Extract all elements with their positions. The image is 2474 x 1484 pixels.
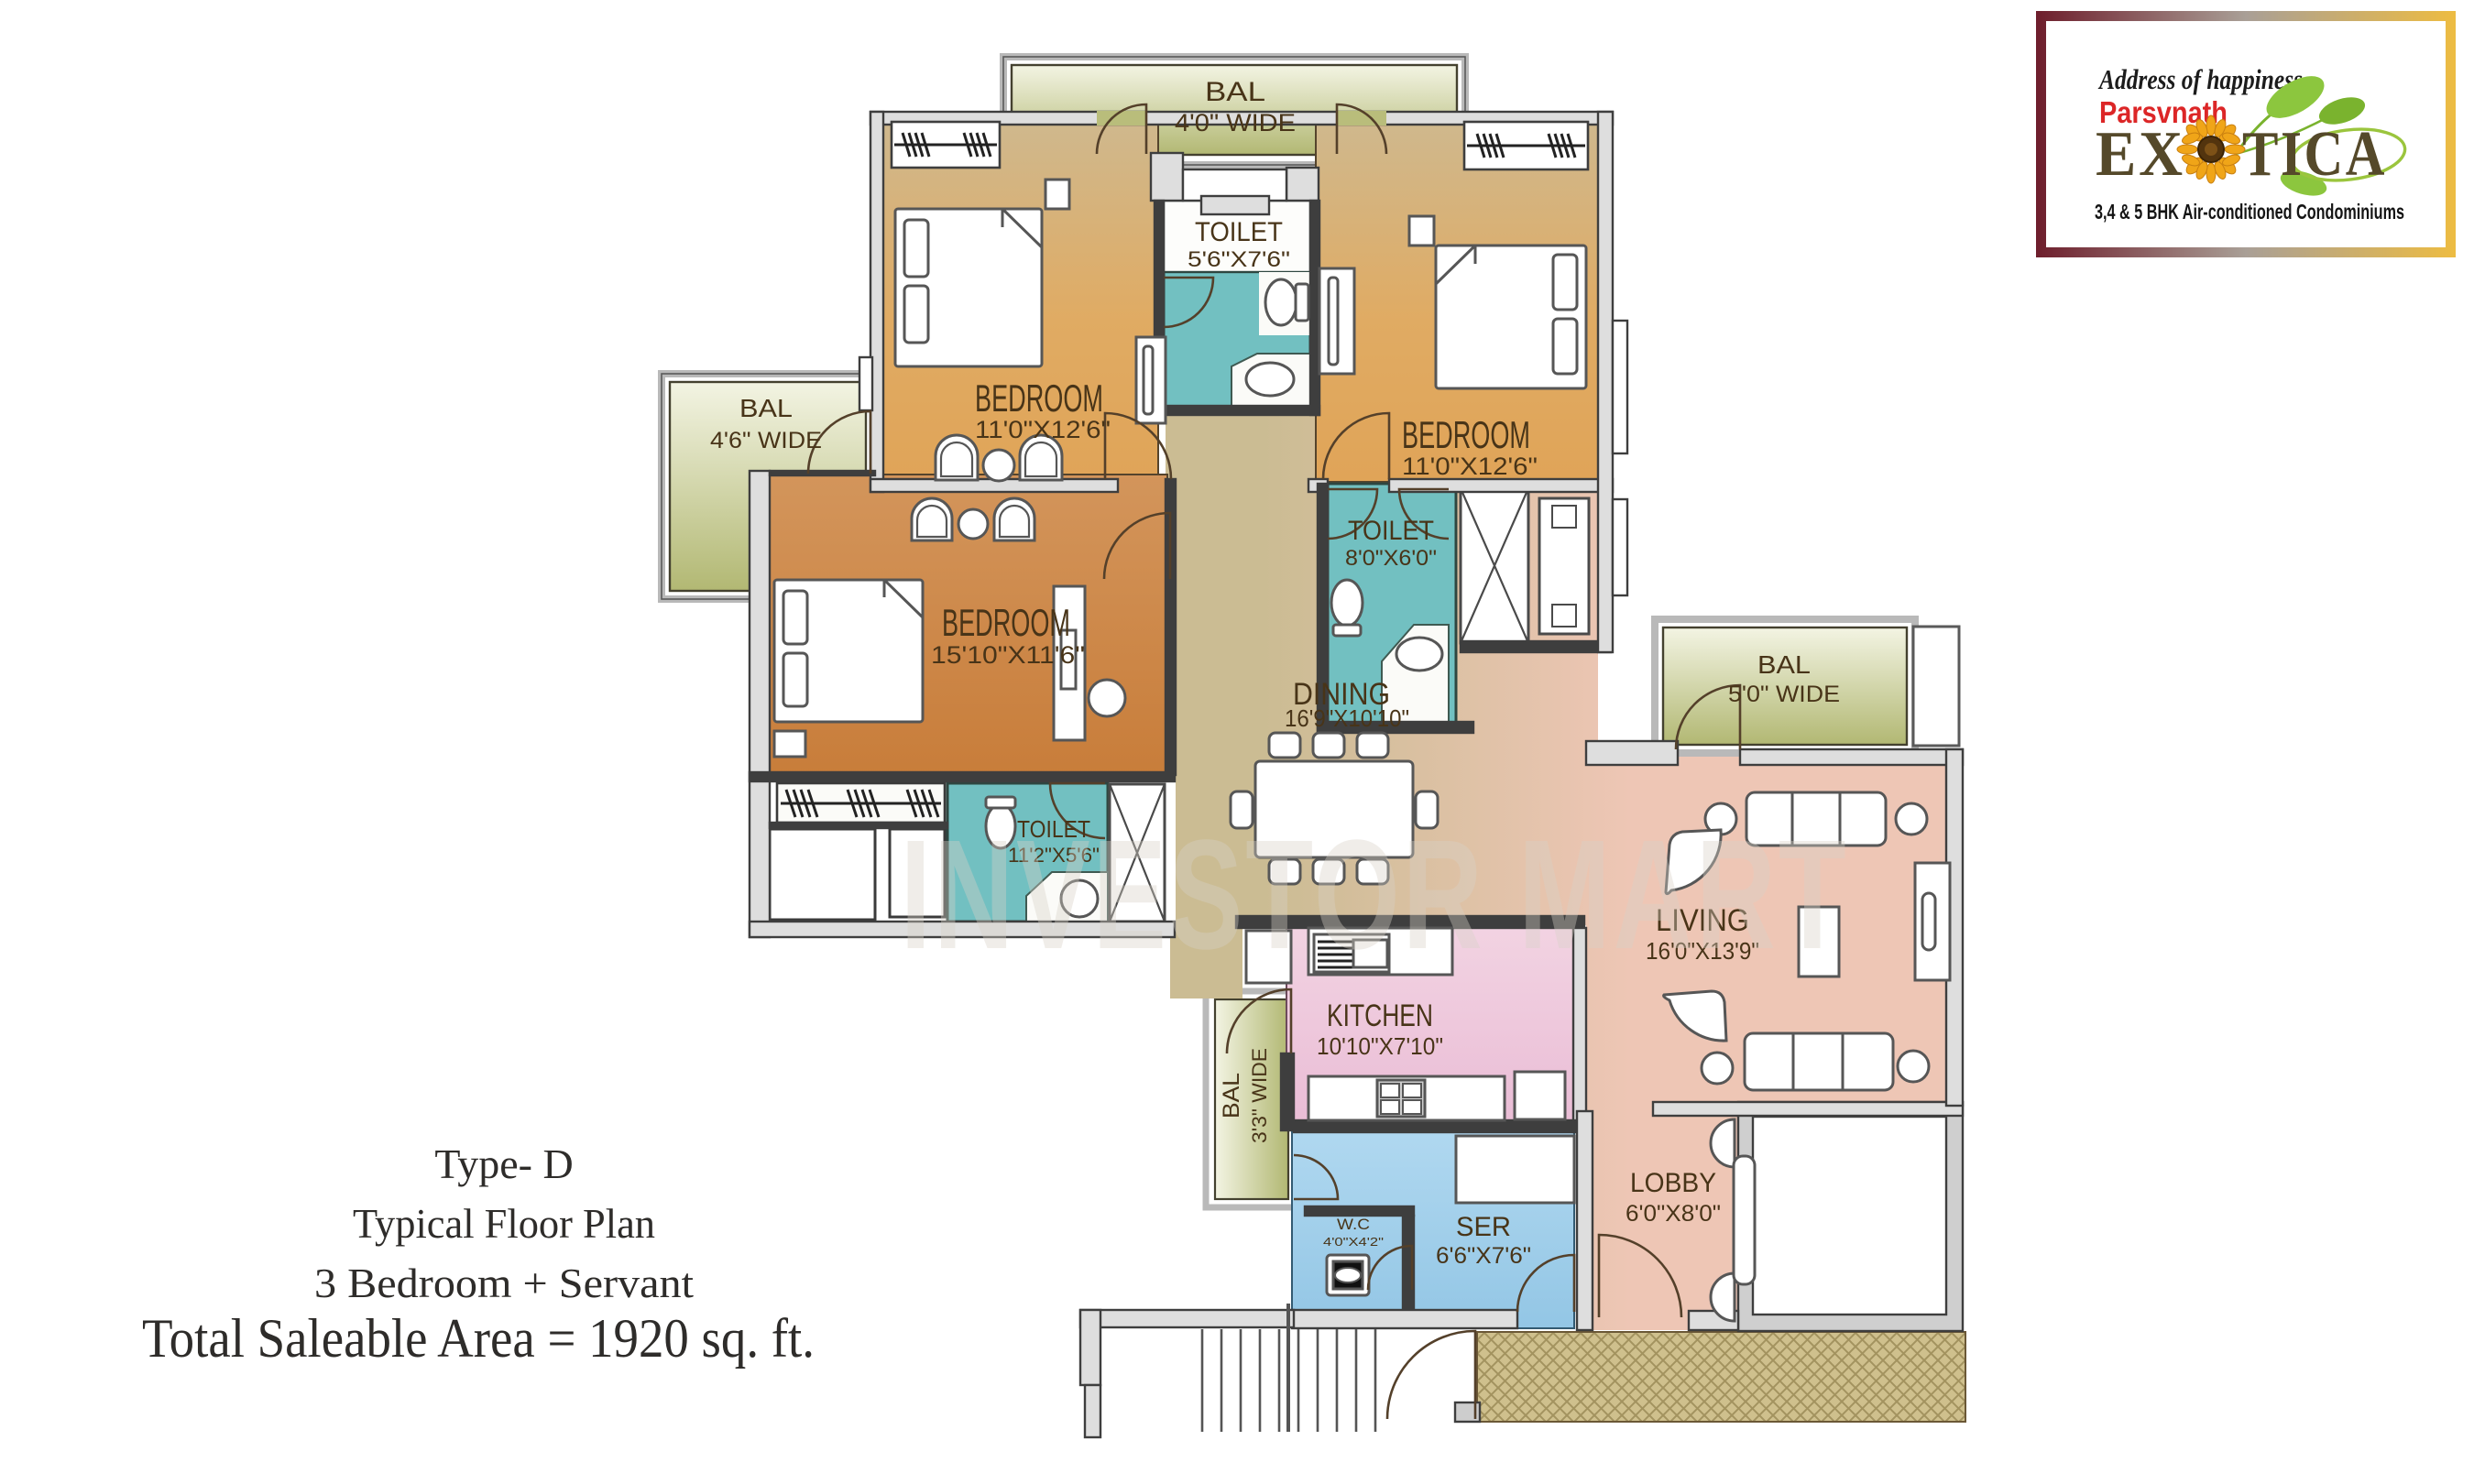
svg-text:8'0"X6'0": 8'0"X6'0" [1345, 546, 1437, 571]
svg-text:5'0" WIDE: 5'0" WIDE [1728, 682, 1840, 707]
svg-text:6'6"X7'6": 6'6"X7'6" [1436, 1243, 1531, 1269]
svg-text:11'0"X12'6": 11'0"X12'6" [1402, 453, 1538, 480]
svg-text:4'0"X4'2": 4'0"X4'2" [1323, 1235, 1384, 1249]
svg-text:4'6" WIDE: 4'6" WIDE [710, 428, 822, 453]
svg-text:5'6"X7'6": 5'6"X7'6" [1188, 247, 1290, 272]
svg-text:Typical Floor Plan: Typical Floor Plan [353, 1200, 655, 1247]
svg-text:BEDROOM: BEDROOM [942, 601, 1070, 644]
svg-text:10'10"X7'10": 10'10"X7'10" [1317, 1032, 1443, 1060]
svg-text:15'10"X11'6": 15'10"X11'6" [931, 641, 1085, 669]
svg-text:SER: SER [1456, 1212, 1511, 1242]
svg-text:16'9"X10'10": 16'9"X10'10" [1285, 704, 1409, 732]
svg-text:3'3" WIDE: 3'3" WIDE [1248, 1048, 1271, 1143]
svg-text:W.C: W.C [1337, 1216, 1370, 1233]
svg-text:Address of happiness: Address of happiness [2097, 63, 2303, 95]
svg-text:6'0"X8'0": 6'0"X8'0" [1626, 1201, 1721, 1227]
svg-text:3 Bedroom + Servant: 3 Bedroom + Servant [314, 1260, 694, 1306]
svg-text:BAL: BAL [739, 394, 793, 422]
svg-text:KITCHEN: KITCHEN [1327, 998, 1433, 1033]
svg-text:BEDROOM: BEDROOM [1402, 413, 1530, 456]
svg-text:TICA: TICA [2242, 119, 2387, 190]
svg-text:3,4 & 5 BHK Air-conditioned Co: 3,4 & 5 BHK Air-conditioned Condominiums [2095, 200, 2404, 224]
svg-text:BEDROOM: BEDROOM [975, 376, 1103, 420]
svg-text:11'0"X12'6": 11'0"X12'6" [975, 416, 1111, 443]
svg-text:LOBBY: LOBBY [1630, 1168, 1716, 1198]
svg-text:Type- D: Type- D [434, 1140, 573, 1187]
svg-text:EX: EX [2096, 119, 2185, 190]
svg-text:INVESTOR MART: INVESTOR MART [901, 808, 1849, 982]
svg-text:BAL: BAL [1205, 77, 1265, 107]
svg-text:TOILET: TOILET [1195, 217, 1283, 247]
svg-text:Total Saleable Area = 1920 sq.: Total Saleable Area = 1920 sq. ft. [142, 1308, 815, 1369]
svg-text:BAL: BAL [1219, 1073, 1244, 1118]
svg-text:BAL: BAL [1757, 650, 1811, 679]
svg-text:4'0" WIDE: 4'0" WIDE [1175, 109, 1296, 136]
svg-text:TOILET: TOILET [1348, 516, 1434, 546]
